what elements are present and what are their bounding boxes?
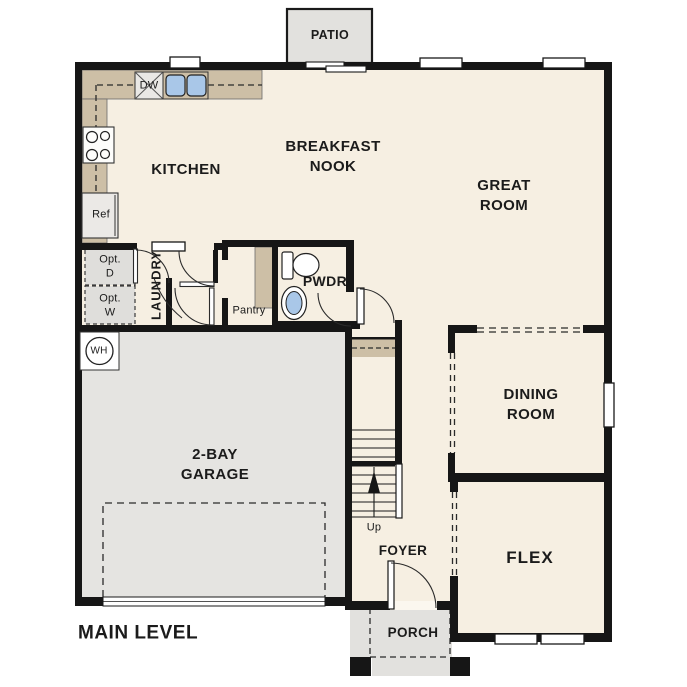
- flex-window-1: [495, 634, 537, 644]
- pwdr-sink-basin: [286, 292, 302, 315]
- patio-slider-panel-2: [326, 66, 366, 72]
- stair-closet-edge: [352, 337, 395, 340]
- wall-stair-east: [395, 320, 402, 465]
- room-label-garage: 2-BAY GARAGE: [181, 445, 249, 485]
- laundry-door-leaf-open: [134, 249, 138, 283]
- stair-handrail: [396, 464, 402, 518]
- room-label-laundry: LAUNDRY: [147, 250, 164, 320]
- fixture-label-opt-dryer: Opt. D: [99, 253, 121, 281]
- stair-landing-wall: [352, 461, 395, 467]
- wall-dining-west-top: [448, 333, 455, 353]
- fixture-label-refrigerator: Ref: [92, 208, 110, 223]
- room-label-foyer: FOYER: [379, 542, 428, 560]
- sink-basin-right-icon: [187, 75, 206, 96]
- wall-exterior-right: [604, 62, 612, 642]
- wall-garage-bottom-left: [75, 597, 103, 606]
- wall-kitchen-south-a: [82, 243, 137, 250]
- flex-window-2: [541, 634, 584, 644]
- pantry-shelf: [255, 247, 273, 308]
- dining-window: [604, 383, 614, 427]
- wall-hall-east: [213, 250, 218, 283]
- room-label-kitchen: KITCHEN: [151, 160, 220, 180]
- front-door-leaf: [388, 561, 394, 609]
- floors-layer: [78, 9, 606, 676]
- room-label-breakfast-nook: BREAKFAST NOOK: [285, 137, 380, 177]
- room-label-great-room: GREAT ROOM: [477, 176, 530, 216]
- room-label-porch: PORCH: [388, 624, 439, 642]
- wall-pwdr-south: [272, 321, 360, 329]
- wall-dining-flex: [448, 473, 604, 482]
- garage-entry-door-leaf: [210, 288, 215, 325]
- wall-garage-east: [345, 328, 352, 610]
- room-label-patio: PATIO: [311, 27, 349, 44]
- room-label-pantry: Pantry: [233, 304, 266, 319]
- wall-pwdr-north: [278, 240, 352, 247]
- garage-door: [103, 597, 325, 606]
- sink-basin-left-icon: [166, 75, 185, 96]
- room-label-flex: FLEX: [506, 547, 553, 569]
- porch-step: [372, 658, 450, 676]
- wall-dining-north-west: [448, 325, 477, 333]
- fixture-label-water-heater: WH: [90, 344, 107, 357]
- wall-pantry-north: [222, 240, 278, 247]
- room-label-dining-room: DINING ROOM: [504, 385, 559, 425]
- page-title: MAIN LEVEL: [78, 620, 198, 645]
- floorplan-page: PATIO KITCHEN BREAKFAST NOOK GREAT ROOM …: [0, 0, 687, 687]
- wall-flex-west-top: [450, 482, 458, 492]
- great-room-window-1: [420, 58, 462, 68]
- wall-flex-west-bottom: [450, 576, 458, 634]
- wall-dining-north-east: [583, 325, 604, 333]
- hall-door-leaf: [357, 288, 364, 324]
- stairs-up-label: Up: [367, 521, 381, 536]
- kitchen-window: [170, 57, 200, 68]
- wall-pantry-west-top: [222, 247, 228, 260]
- front-door-opening: [390, 601, 437, 610]
- fixture-label-dishwasher: DW: [140, 79, 159, 94]
- wall-pantry-west-bottom: [222, 298, 228, 332]
- porch-post-left: [350, 657, 371, 676]
- wall-pantry-east: [272, 240, 278, 332]
- room-label-pwdr: PWDR: [303, 272, 347, 290]
- great-room-window-2: [543, 58, 585, 68]
- wall-pwdr-east: [346, 240, 354, 292]
- porch-post-right: [450, 657, 470, 676]
- toilet-tank-icon: [282, 252, 293, 279]
- fixture-label-opt-washer: Opt. W: [99, 292, 121, 320]
